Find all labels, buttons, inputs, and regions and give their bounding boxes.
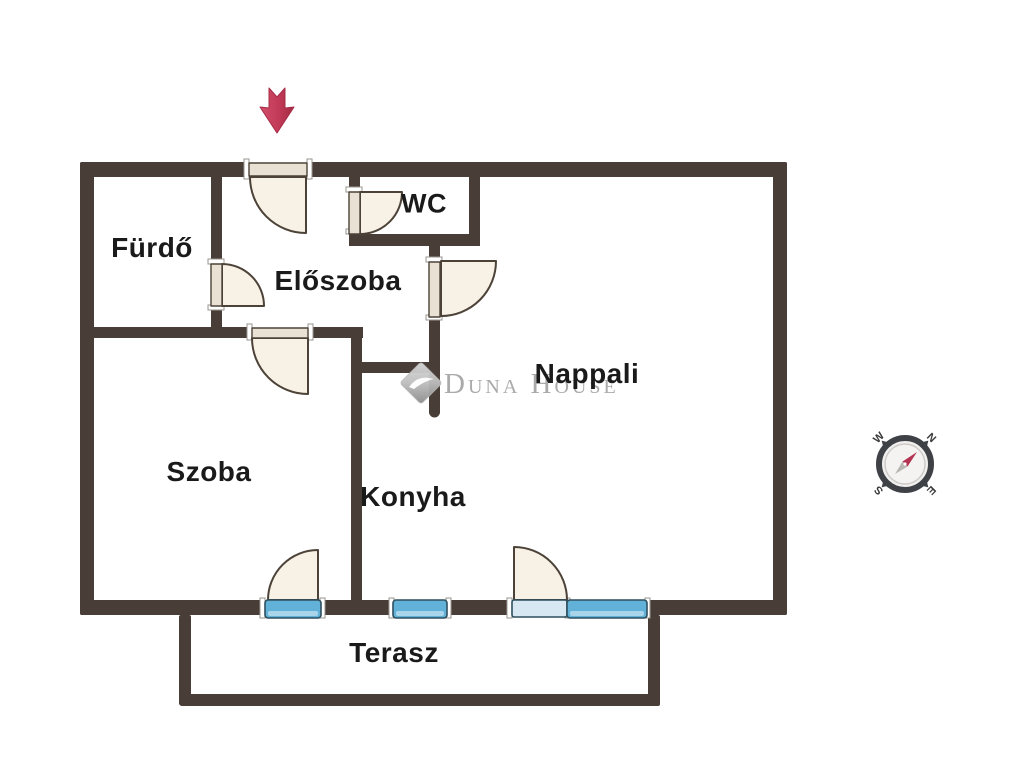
floor-plan-page: W N S E Duna House Fürdő Előszoba WC Nap… [0,0,1024,768]
watermark-text: Duna House [444,368,619,401]
watermark-layer: Duna House [0,0,1024,768]
